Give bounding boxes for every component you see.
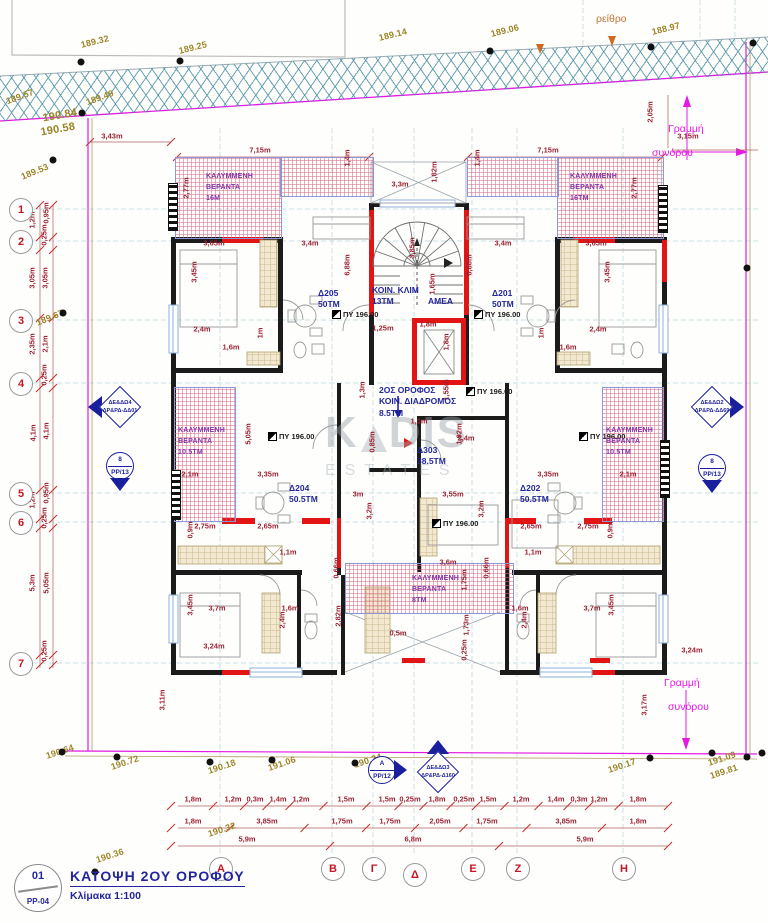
dim-label: 0,5m [389, 629, 406, 637]
dim-label: 0,85m [368, 431, 376, 452]
dim-label: 1,4m [343, 149, 351, 166]
railing-mid-left [171, 470, 181, 520]
level-mark-text: ΠΥ 196.00 [477, 388, 512, 396]
detail-marker-arrow-icon [394, 760, 407, 780]
veranda-label-line: ΒΕΡΑΝΤΑ [206, 183, 253, 194]
veranda-hatch-top-left-strip [280, 157, 374, 197]
dim-label: 3,4m [301, 239, 318, 247]
dim-label: 0,66m [482, 557, 490, 578]
dim-label: 2,75m [194, 522, 215, 530]
veranda-label-line: ΒΕΡΑΝΤΑ [178, 437, 225, 448]
room-label-line: 38.5ΤΜ [417, 456, 446, 467]
grid-row-bubble: 3 [9, 309, 33, 333]
dim-label: 4,1m [29, 424, 37, 441]
dim-tick [36, 246, 57, 254]
veranda-label-line: 8ΤΜ [412, 596, 459, 607]
railing-top-left [168, 183, 178, 231]
dim-label: 1,75m [460, 569, 468, 590]
dim-label: 2,77m [630, 177, 638, 198]
dim-label: 1,3m [358, 381, 366, 398]
boundary-note: συνόρου [668, 702, 709, 713]
grid-row-bubble: 5 [9, 482, 33, 506]
veranda-label: ΚΑΛΥΜΜΕΝΗΒΕΡΑΝΤΑ8ΤΜ [412, 574, 459, 607]
drawing-scale: Κλίμακα 1:100 [70, 890, 245, 902]
dim-label: 3,85m [408, 237, 416, 258]
section-marker-text: ΔΕ&ΔΩ4 [108, 399, 131, 407]
dim-label: 2,4m [457, 434, 474, 442]
dim-label: 3,7m [208, 604, 225, 612]
dim-label: 1,5m [378, 795, 395, 803]
dim-label: 5,9m [576, 835, 593, 843]
survey-point [114, 754, 121, 761]
dim-label: 1,5m [479, 795, 496, 803]
dim-label: 1,65m [428, 273, 436, 294]
floor-plan-drawing: K DIS ESTATES 01 PP-04 ΚΑΤΟΨΗ 2ΟΥ ΟΡΟΦΟΥ… [0, 0, 768, 923]
section-marker-text: ΔΡ&ΡΔ-ΔΔ01 [103, 407, 138, 415]
grid-col-bubble: Β [321, 857, 345, 881]
detail-marker-top: 8 [698, 458, 726, 465]
level-mark-text: ΠΥ 196.00 [279, 433, 314, 441]
dim-label: 2,1m [619, 470, 636, 478]
dim-label: 0,25m [40, 640, 48, 661]
dim-label: 1,25m [372, 324, 393, 332]
dim-label: 2,1m [41, 335, 49, 352]
survey-point [750, 40, 757, 47]
room-label-line: 2ΟΣ ΟΡΟΦΟΣ [379, 385, 456, 396]
veranda-label-line: ΒΕΡΑΝΤΑ [412, 585, 459, 596]
detail-marker-top: 8 [106, 456, 134, 463]
veranda-label: ΚΑΛΥΜΜΕΝΗΒΕΡΑΝΤΑ10.5ΤΜ [178, 426, 225, 459]
level-mark: ΠΥ 196.00 [466, 387, 512, 396]
dim-label: 1,6m [511, 604, 528, 612]
watermark-sub: ESTATES [325, 462, 468, 480]
dim-label: 3,85m [256, 817, 277, 825]
dim-label: 0,25m [453, 795, 474, 803]
veranda-label: ΚΑΛΥΜΜΕΝΗΒΕΡΑΝΤΑ16ΤΜ [570, 172, 617, 205]
railing-mid-right [660, 440, 670, 498]
survey-point [709, 750, 716, 757]
detail-marker-arrow-icon [110, 478, 130, 491]
dim-label: 5,9m [238, 835, 255, 843]
section-marker-text: ΔΕ&ΔΩ3 [426, 764, 449, 772]
room-label: ΑΜΕΑ [428, 296, 453, 307]
divider [700, 468, 724, 469]
grid-row-bubble: 4 [9, 372, 33, 396]
dim-label: 1,75m [476, 817, 497, 825]
detail-marker-bottom: PP/13 [106, 469, 134, 476]
room-label-line: Δ201 [492, 288, 514, 299]
grid-col-bubble: Η [612, 857, 636, 881]
level-mark-icon [268, 432, 277, 441]
dim-label: 1,82m [430, 161, 438, 182]
divider [18, 885, 58, 892]
detail-marker-bottom: PP/12 [368, 773, 396, 780]
dim-label: 1,6m [222, 343, 239, 351]
dim-label: 3,45m [186, 594, 194, 615]
dim-label: 3,24m [681, 646, 702, 654]
dim-label: 1,8m [184, 795, 201, 803]
room-label-line: ΚΟΙΝ. ΔΙΑΔΡΟΜΟΣ [379, 396, 456, 407]
dim-label: 3,17m [640, 694, 648, 715]
room-label: Δ20550ΤΜ [318, 288, 340, 311]
room-label-line: ΚΟΙΝ. ΚΛΙΜ [372, 285, 419, 296]
survey-point [744, 754, 751, 761]
detail-marker: 8PP/13 [698, 454, 726, 482]
dim-label: 1,4m [547, 795, 564, 803]
level-mark: ΠΥ 196.00 [474, 310, 520, 319]
dim-label: 3,45m [190, 261, 198, 282]
room-label-line: 8.5ΤΜ [379, 408, 456, 419]
level-mark-icon [332, 310, 341, 319]
dim-label: 3,85m [555, 817, 576, 825]
dim-label: 5,05m [244, 423, 252, 444]
dim-label: 3,45m [603, 261, 611, 282]
dim-label: 1,75m [379, 817, 400, 825]
room-label-line: 50ΤΜ [492, 299, 514, 310]
veranda-label-line: ΚΑΛΥΜΜΕΝΗ [606, 426, 653, 437]
dim-label: 3,65m [203, 239, 224, 247]
survey-point [207, 759, 214, 766]
grid-row-bubble: 6 [9, 511, 33, 535]
room-label: Δ30338.5ΤΜ [417, 445, 446, 468]
dim-label: 1,1m [524, 548, 541, 556]
boundary-note: συνόρου [652, 148, 693, 159]
veranda-label-line: 16ΤΜ [570, 194, 617, 205]
dim-label: 3,45m [607, 594, 615, 615]
veranda-label-line: ΒΕΡΑΝΤΑ [606, 437, 653, 448]
dim-label: 2,1m [181, 470, 198, 478]
level-mark-text: ΠΥ 196.00 [443, 520, 478, 528]
level-mark-icon [474, 310, 483, 319]
veranda-label: ΚΑΛΥΜΜΕΝΗΒΕΡΑΝΤΑ16Μ [206, 172, 253, 205]
survey-point [60, 310, 67, 317]
dim-label: 3,55m [442, 490, 463, 498]
divider [108, 466, 132, 467]
detail-marker: 8PP/13 [106, 452, 134, 480]
section-marker-text: ΔΡ&ΡΔ-Δ160 [421, 772, 455, 780]
dim-label: 3,3m [391, 180, 408, 188]
survey-point [744, 265, 751, 272]
grid-col-bubble: Γ [362, 857, 386, 881]
detail-marker: ΑPP/12 [368, 756, 396, 784]
dim-label: 5,05m [42, 572, 50, 593]
veranda-label-line: 16Μ [206, 194, 253, 205]
grid-col-bubble: Ε [461, 857, 485, 881]
room-label-line: ΑΜΕΑ [428, 296, 453, 307]
room-label-line: Δ205 [318, 288, 340, 299]
room-label-line: 50.5ΤΜ [289, 494, 318, 505]
dim-label: 1,2m [224, 795, 241, 803]
detail-marker-top: Α [368, 760, 396, 767]
dim-label: 3,2m [365, 502, 373, 519]
room-label-line: 50ΤΜ [318, 299, 340, 310]
dim-label: 2,65m [257, 522, 278, 530]
dim-label: 1,2m [590, 795, 607, 803]
dim-label: 0,3m [570, 795, 587, 803]
survey-point [59, 749, 66, 756]
dim-label: 6,88m [465, 254, 473, 275]
section-marker: ΔΕ&ΔΩ3ΔΡ&ΡΔ-Δ160 [418, 752, 458, 792]
dim-label: 0,9m [186, 521, 194, 538]
dim-label: 1,8m [629, 817, 646, 825]
dim-label: 2,05m [429, 817, 450, 825]
dim-label: 2,35m [28, 333, 36, 354]
dim-label: 6,88m [343, 254, 351, 275]
drawing-title: ΚΑΤΟΨΗ 2ΟΥ ΟΡΟΦΟΥ [70, 868, 245, 887]
dim-label: 2,82m [334, 605, 342, 626]
veranda-label-line: 10.5ΤΜ [178, 448, 225, 459]
dim-label: 1,2m [512, 795, 529, 803]
dim-label: 0,25m [40, 224, 48, 245]
boundary-note: Γραμμή [664, 678, 700, 689]
dim-label: 1,4m [269, 795, 286, 803]
dim-label: 3,35m [537, 470, 558, 478]
grid-row-bubble: 2 [9, 230, 33, 254]
dim-label: 3,05m [28, 267, 36, 288]
veranda-label-line: ΚΑΛΥΜΜΕΝΗ [206, 172, 253, 183]
survey-point [352, 760, 359, 767]
watermark-k: K [325, 408, 359, 458]
dim-label: 4,1m [42, 422, 50, 439]
survey-point [647, 755, 654, 762]
dim-label: 1,8m [428, 795, 445, 803]
dim-label: 0,25m [399, 795, 420, 803]
survey-point [50, 157, 57, 164]
divider [370, 770, 394, 771]
dim-label: 3,2m [477, 500, 485, 517]
dim-label: 3,7m [583, 604, 600, 612]
dim-label: 1,6m [281, 604, 298, 612]
room-label-line: 13ΤΜ [372, 296, 419, 307]
veranda-label-line: 10.5ΤΜ [606, 448, 653, 459]
dim-label: 2,4m [589, 325, 606, 333]
dim-label: 3,6m [439, 558, 456, 566]
survey-point [759, 750, 766, 757]
level-mark: ΠΥ 196.00 [268, 432, 314, 441]
veranda-label-line: ΚΑΛΥΜΜΕΝΗ [178, 426, 225, 437]
level-mark-icon [466, 387, 475, 396]
dim-label: 0,95m [42, 202, 50, 223]
dim-label: 1m [256, 328, 264, 339]
dim-label: 2,65m [520, 522, 541, 530]
dim-label: 7,15m [537, 146, 558, 154]
dim-label: 2,05m [646, 101, 654, 122]
dim-label: 1,8m [184, 817, 201, 825]
dim-label: 3,11m [158, 690, 166, 711]
dim-label: 3,65m [585, 239, 606, 247]
survey-point [269, 757, 276, 764]
section-marker: ΔΕ&ΔΩ4ΔΡ&ΡΔ-ΔΔ01 [100, 387, 140, 427]
dim-label: 3,35m [257, 470, 278, 478]
dim-label: 1,73m [462, 614, 470, 635]
dim-label: 1,5m [337, 795, 354, 803]
veranda-label-line: ΚΑΛΥΜΜΕΝΗ [570, 172, 617, 183]
dim-label: 1,6m [559, 343, 576, 351]
sheet-number: PP-04 [15, 897, 61, 906]
grid-col-bubble: Δ [403, 863, 427, 887]
dim-label: 3m [353, 490, 364, 498]
dim-label: 1,75m [331, 817, 352, 825]
survey-point [177, 58, 184, 65]
dim-label: 0,25m [40, 364, 48, 385]
detail-marker-bottom: PP/13 [698, 471, 726, 478]
room-label: Δ20250.5ΤΜ [520, 483, 549, 506]
dim-label: 0,9m [606, 521, 614, 538]
dim-label: 1,4m [473, 149, 481, 166]
dim-label: 5,3m [28, 574, 36, 591]
room-label-line: Δ202 [520, 483, 549, 494]
dim-label: 7,15m [249, 146, 270, 154]
room-label: Δ20150ΤΜ [492, 288, 514, 311]
level-mark: ΠΥ 196.00 [332, 310, 378, 319]
dim-label: 6,8m [404, 835, 421, 843]
dim-label: 0,95m [42, 482, 50, 503]
dim-label: 1,8m [442, 333, 450, 350]
survey-point [78, 59, 85, 66]
survey-point [487, 48, 494, 55]
survey-point [79, 110, 86, 117]
level-mark-text: ΠΥ 196.00 [485, 311, 520, 319]
dim-label: 2,4m [193, 325, 210, 333]
dim-label: 2,75m [577, 522, 598, 530]
dim-label: 1,2m [292, 795, 309, 803]
survey-point [648, 44, 655, 51]
veranda-label-line: ΚΑΛΥΜΜΕΝΗ [412, 574, 459, 585]
dim-label: 3,43m [101, 132, 122, 140]
level-mark: ΠΥ 196.00 [432, 519, 478, 528]
dim-label: 3,24m [203, 642, 224, 650]
dim-label: 0,66m [332, 557, 340, 578]
room-label: 2ΟΣ ΟΡΟΦΟΣΚΟΙΝ. ΔΙΑΔΡΟΜΟΣ8.5ΤΜ [379, 385, 456, 419]
dim-label: 3,05m [41, 267, 49, 288]
dim-label: 2,4m [278, 611, 286, 628]
level-mark-icon [579, 432, 588, 441]
room-label-line: Δ204 [289, 483, 318, 494]
section-marker: ΔΕ&ΔΩ2ΔΡ&ΡΔ-ΔΔ69 [692, 387, 732, 427]
grid-col-bubble: Ζ [506, 857, 530, 881]
drawing-number: 01 [15, 870, 61, 882]
room-label: Δ20450.5ΤΜ [289, 483, 318, 506]
veranda-label-line: ΒΕΡΑΝΤΑ [570, 183, 617, 194]
room-label: ΚΟΙΝ. ΚΛΙΜ13ΤΜ [372, 285, 419, 308]
grid-row-bubble: 1 [9, 198, 33, 222]
dim-label: 1m [537, 328, 545, 339]
dim-label: 1,1m [279, 548, 296, 556]
veranda-label: ΚΑΛΥΜΜΕΝΗΒΕΡΑΝΤΑ10.5ΤΜ [606, 426, 653, 459]
section-marker-text: ΔΕ&ΔΩ2 [700, 399, 723, 407]
dim-label: 1,8m [419, 320, 436, 328]
dim-label: 0,25m [40, 507, 48, 528]
dim-label: 1,8m [629, 795, 646, 803]
dim-label: 2,4m [520, 611, 528, 628]
detail-marker-arrow-icon [702, 480, 722, 493]
grid-row-bubble: 7 [9, 652, 33, 676]
title-block: 01 PP-04 ΚΑΤΟΨΗ 2ΟΥ ΟΡΟΦΟΥ Κλίμακα 1:100 [14, 864, 245, 912]
dim-label: 3,4m [494, 239, 511, 247]
room-label-line: Δ303 [417, 445, 446, 456]
road-label: ρείθρο [596, 14, 627, 25]
boundary-note: Γραμμή [668, 124, 704, 135]
section-marker-text: ΔΡ&ΡΔ-ΔΔ69 [695, 407, 730, 415]
level-mark-icon [432, 519, 441, 528]
room-label-line: 50.5ΤΜ [520, 494, 549, 505]
drawing-number-bubble: 01 PP-04 [14, 864, 62, 912]
dim-label: 0,3m [246, 795, 263, 803]
level-mark-text: ΠΥ 196.00 [343, 311, 378, 319]
dim-label: 2,77m [182, 177, 190, 198]
dim-label: 0,25m [460, 639, 468, 660]
railing-top-right [658, 185, 668, 233]
dim-tick [36, 661, 57, 669]
